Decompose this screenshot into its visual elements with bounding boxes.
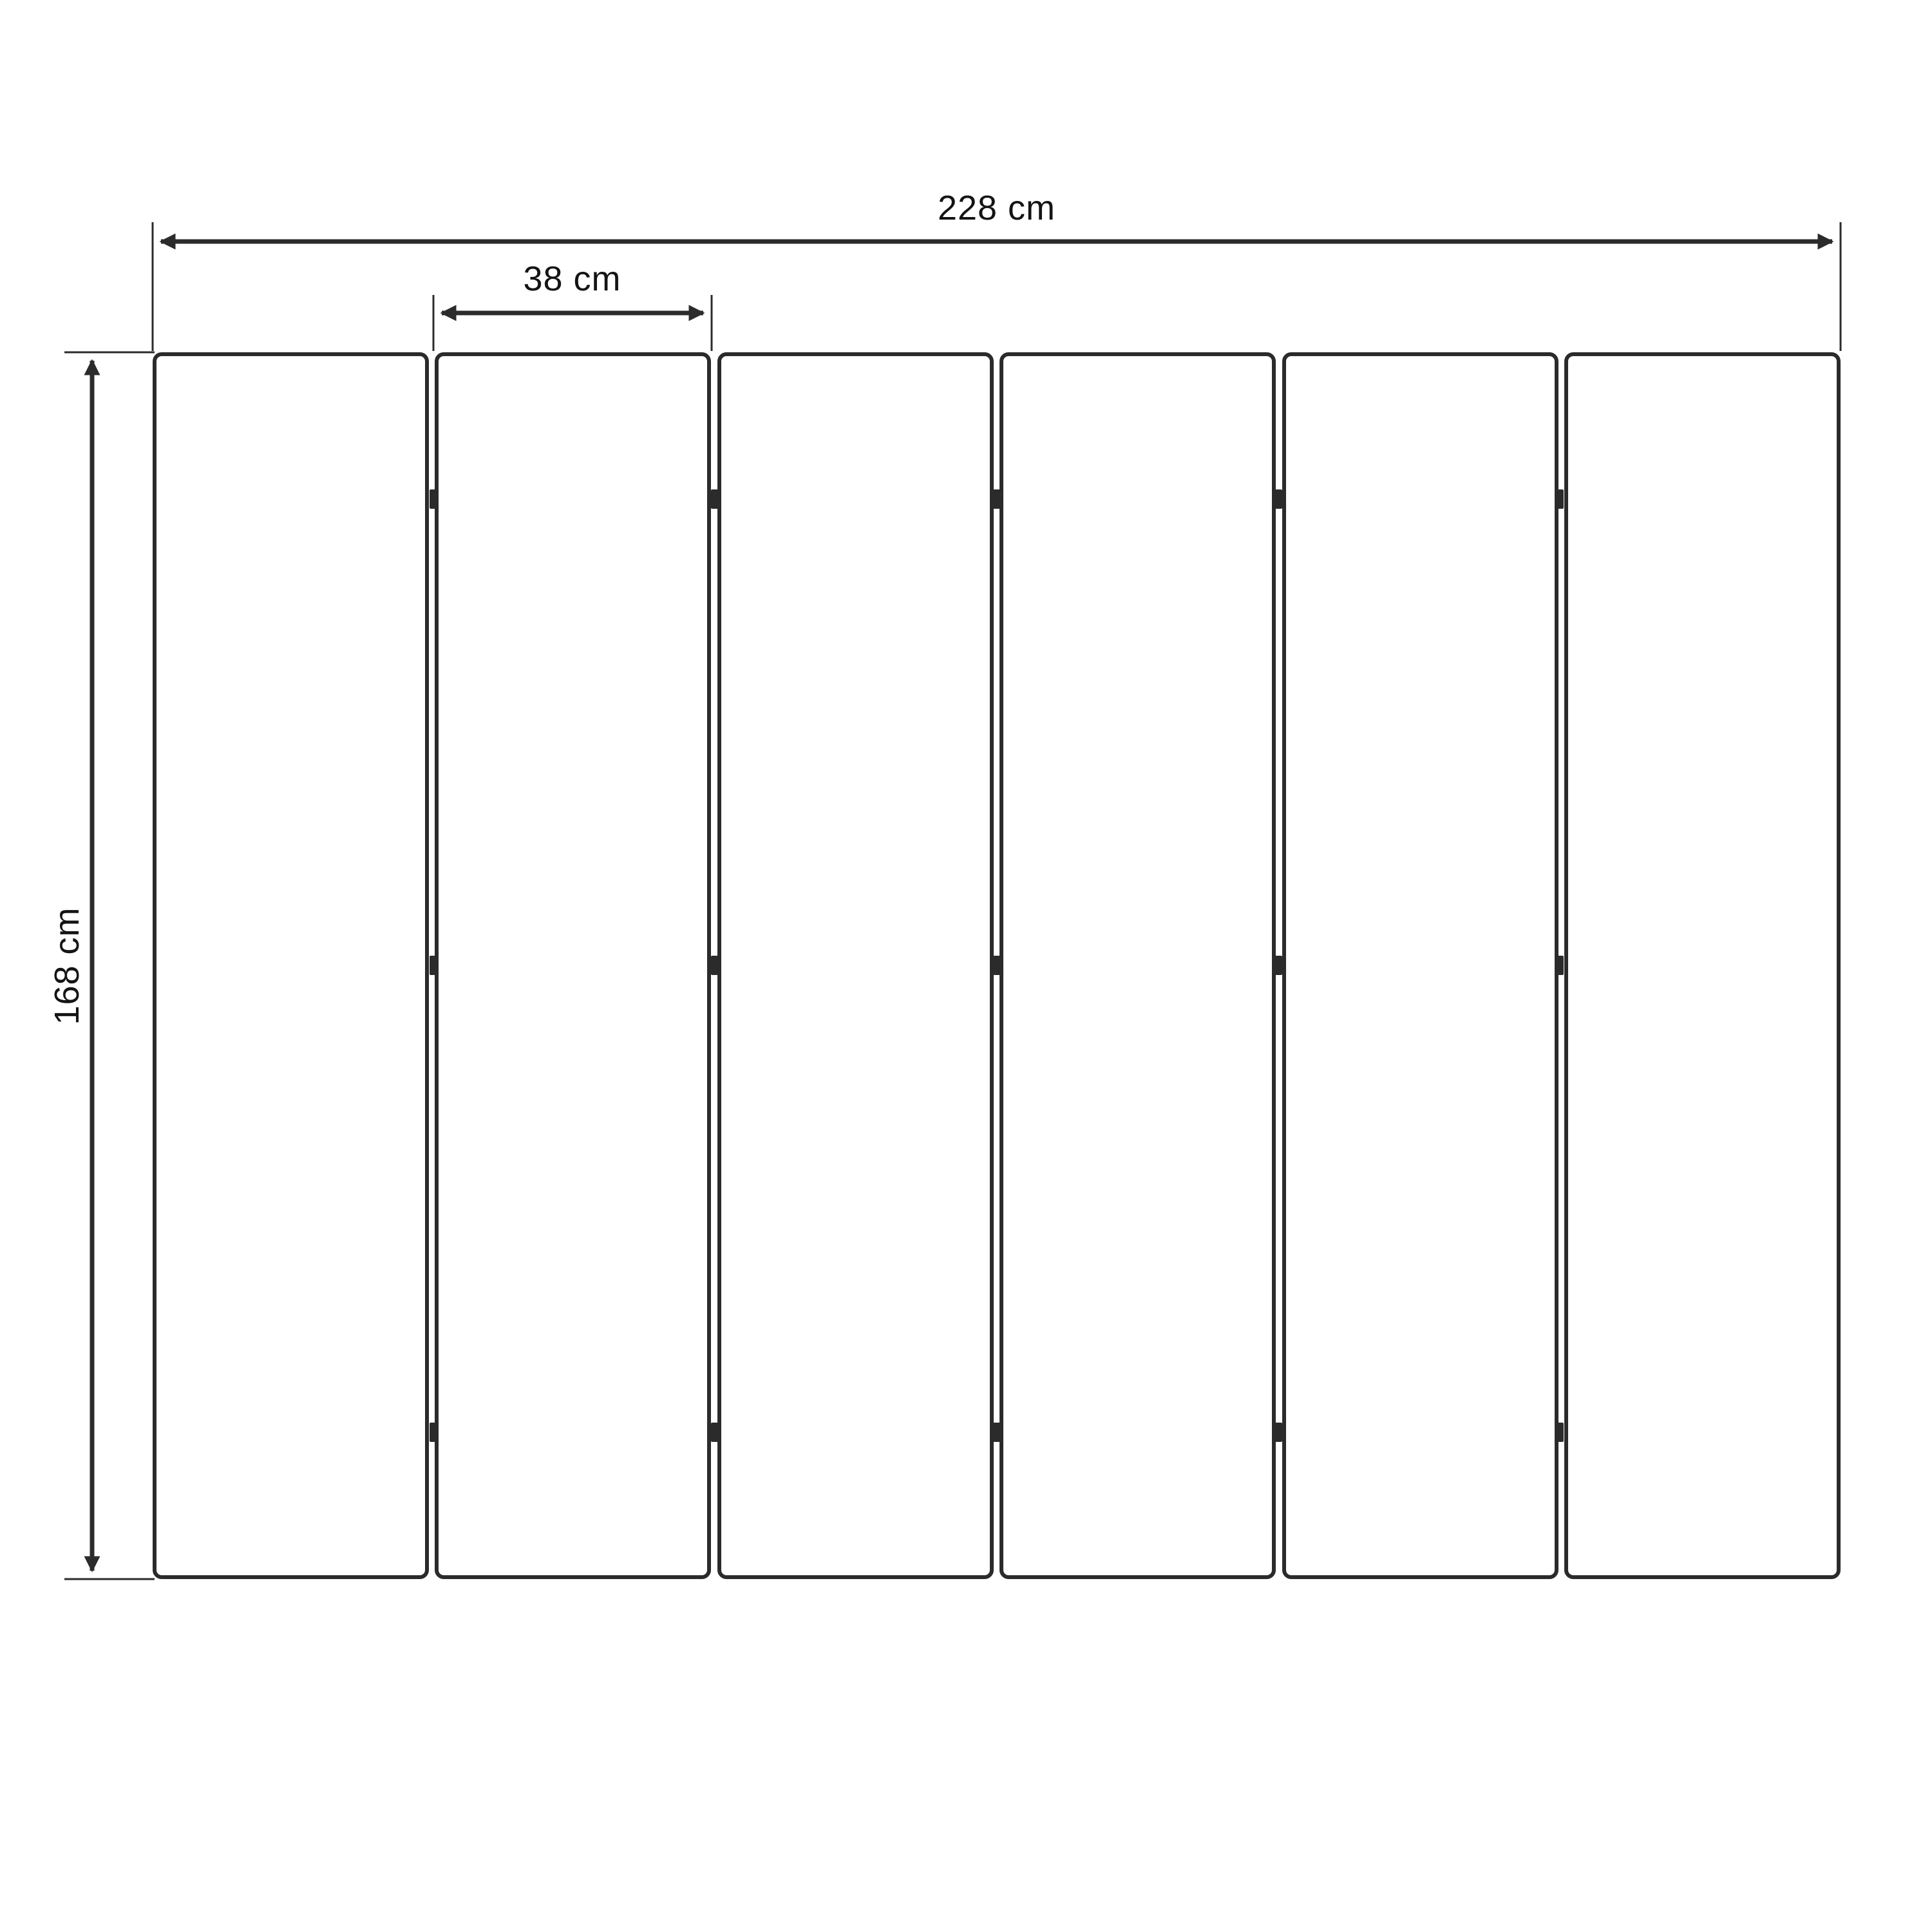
panel-6: [1564, 352, 1841, 1579]
hinge-mark: [992, 489, 1001, 509]
panel-3: [717, 352, 994, 1579]
hinge-mark: [430, 1423, 439, 1442]
dimension-label-total-width: 228 cm: [153, 191, 1841, 225]
hinge-mark: [430, 956, 439, 975]
hinge-mark: [1273, 1423, 1282, 1442]
panel-5: [1282, 352, 1558, 1579]
panel-1: [153, 352, 429, 1579]
hinge-mark: [711, 489, 720, 509]
dimension-diagram: 228 cm 38 cm 168 cm: [0, 0, 1932, 1932]
hinge-mark: [711, 956, 720, 975]
dimension-label-height: 168 cm: [50, 907, 84, 1025]
hinge-mark: [1555, 1423, 1564, 1442]
hinge-mark: [992, 1423, 1001, 1442]
panel-4: [999, 352, 1276, 1579]
hinge-mark: [711, 1423, 720, 1442]
hinge-mark: [1555, 956, 1564, 975]
hinge-mark: [1555, 489, 1564, 509]
hinge-mark: [1273, 956, 1282, 975]
panel-row: [153, 352, 1841, 1579]
panel-2: [435, 352, 711, 1579]
hinge-mark: [1273, 489, 1282, 509]
dimension-label-panel-width: 38 cm: [433, 261, 712, 296]
hinge-mark: [992, 956, 1001, 975]
hinge-mark: [430, 489, 439, 509]
